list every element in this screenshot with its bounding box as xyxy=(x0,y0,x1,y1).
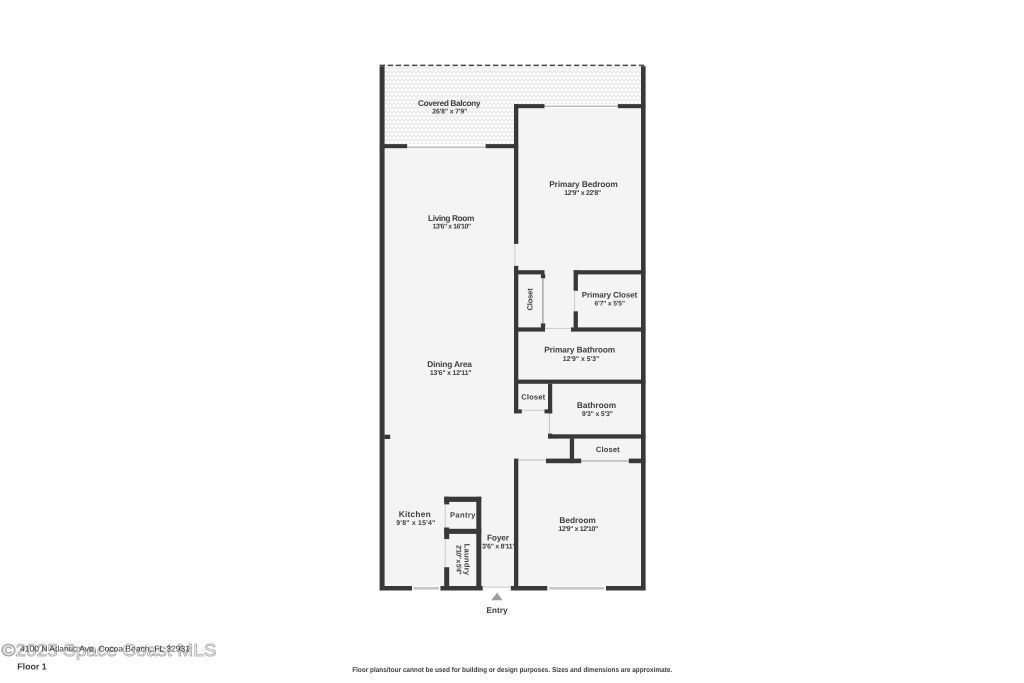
svg-text:Floor 1: Floor 1 xyxy=(17,661,46,671)
svg-text:Closet: Closet xyxy=(521,392,545,401)
svg-text:Living Room: Living Room xyxy=(428,213,474,223)
svg-text:Covered Balcony: Covered Balcony xyxy=(418,98,481,108)
svg-text:6'7" x 5'5": 6'7" x 5'5" xyxy=(595,301,626,308)
svg-text:Bathroom: Bathroom xyxy=(577,400,616,410)
svg-text:Closet: Closet xyxy=(526,288,535,311)
svg-text:4100 N Atlantic Ave, Cocoa Bea: 4100 N Atlantic Ave, Cocoa Beach, FL 329… xyxy=(20,644,190,654)
svg-text:Primary Bedroom: Primary Bedroom xyxy=(549,179,618,189)
svg-text:Floor plans/tour cannot be use: Floor plans/tour cannot be used for buil… xyxy=(352,666,672,674)
svg-text:Dining Area: Dining Area xyxy=(427,359,472,369)
svg-text:26'8" x 7'9": 26'8" x 7'9" xyxy=(432,109,467,116)
svg-text:Laundry: Laundry xyxy=(463,544,472,576)
svg-text:Primary Bathroom: Primary Bathroom xyxy=(544,345,615,355)
svg-text:Bedroom: Bedroom xyxy=(559,515,595,525)
svg-text:12'9" x 5'3": 12'9" x 5'3" xyxy=(563,356,600,363)
svg-text:Entry: Entry xyxy=(486,605,508,615)
svg-text:Kitchen: Kitchen xyxy=(399,509,431,519)
svg-text:12'9" x 12'10": 12'9" x 12'10" xyxy=(558,526,598,533)
svg-text:Foyer: Foyer xyxy=(487,533,510,543)
svg-text:2'10" x 5'4": 2'10" x 5'4" xyxy=(454,545,461,575)
svg-text:13'6" x 12'11": 13'6" x 12'11" xyxy=(430,370,472,377)
svg-text:Primary Closet: Primary Closet xyxy=(582,291,638,300)
svg-text:12'9" x 22'8": 12'9" x 22'8" xyxy=(564,190,601,197)
svg-text:Closet: Closet xyxy=(596,445,620,454)
svg-text:13'6" x 16'10": 13'6" x 16'10" xyxy=(433,224,472,231)
svg-text:9'8" x 15'4": 9'8" x 15'4" xyxy=(396,520,435,527)
svg-text:Pantry: Pantry xyxy=(450,510,476,519)
svg-text:3'6" x 8'11": 3'6" x 8'11" xyxy=(482,544,516,551)
svg-text:9'3" x 5'3": 9'3" x 5'3" xyxy=(582,411,613,418)
